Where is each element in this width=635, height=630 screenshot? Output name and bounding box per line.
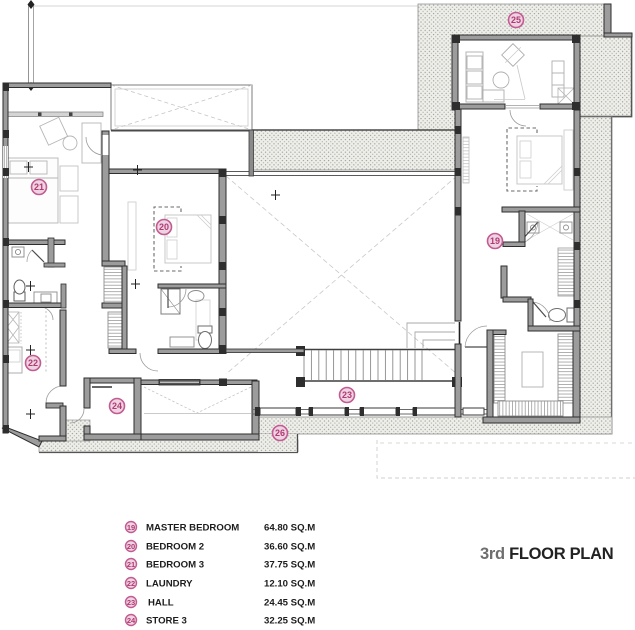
svg-text:3rd FLOOR PLAN: 3rd FLOOR PLAN <box>480 545 613 563</box>
svg-text:25: 25 <box>511 15 521 25</box>
svg-text:37.75 SQ.M: 37.75 SQ.M <box>264 560 315 571</box>
svg-text:22: 22 <box>28 358 38 368</box>
svg-text:12.10 SQ.M: 12.10 SQ.M <box>264 579 315 590</box>
svg-text:HALL: HALL <box>148 598 174 609</box>
svg-text:32.25 SQ.M: 32.25 SQ.M <box>264 616 315 627</box>
svg-text:24.45 SQ.M: 24.45 SQ.M <box>264 598 315 609</box>
svg-text:21: 21 <box>34 182 44 192</box>
svg-text:BEDROOM 2: BEDROOM 2 <box>146 542 204 553</box>
svg-text:MASTER BEDROOM: MASTER BEDROOM <box>146 523 239 534</box>
svg-text:23: 23 <box>342 390 352 400</box>
svg-text:64.80 SQ.M: 64.80 SQ.M <box>264 523 315 534</box>
svg-text:22: 22 <box>127 579 135 588</box>
svg-text:STORE 3: STORE 3 <box>146 616 187 627</box>
svg-text:19: 19 <box>490 236 500 246</box>
svg-text:24: 24 <box>112 401 122 411</box>
svg-text:36.60 SQ.M: 36.60 SQ.M <box>264 542 315 553</box>
svg-text:19: 19 <box>127 523 135 532</box>
svg-text:LAUNDRY: LAUNDRY <box>146 579 193 590</box>
svg-text:24: 24 <box>127 616 136 625</box>
svg-text:26: 26 <box>275 428 285 438</box>
svg-text:20: 20 <box>127 542 135 551</box>
svg-text:BEDROOM 3: BEDROOM 3 <box>146 560 204 571</box>
svg-text:21: 21 <box>127 560 135 569</box>
svg-text:20: 20 <box>159 222 169 232</box>
svg-text:23: 23 <box>127 598 135 607</box>
